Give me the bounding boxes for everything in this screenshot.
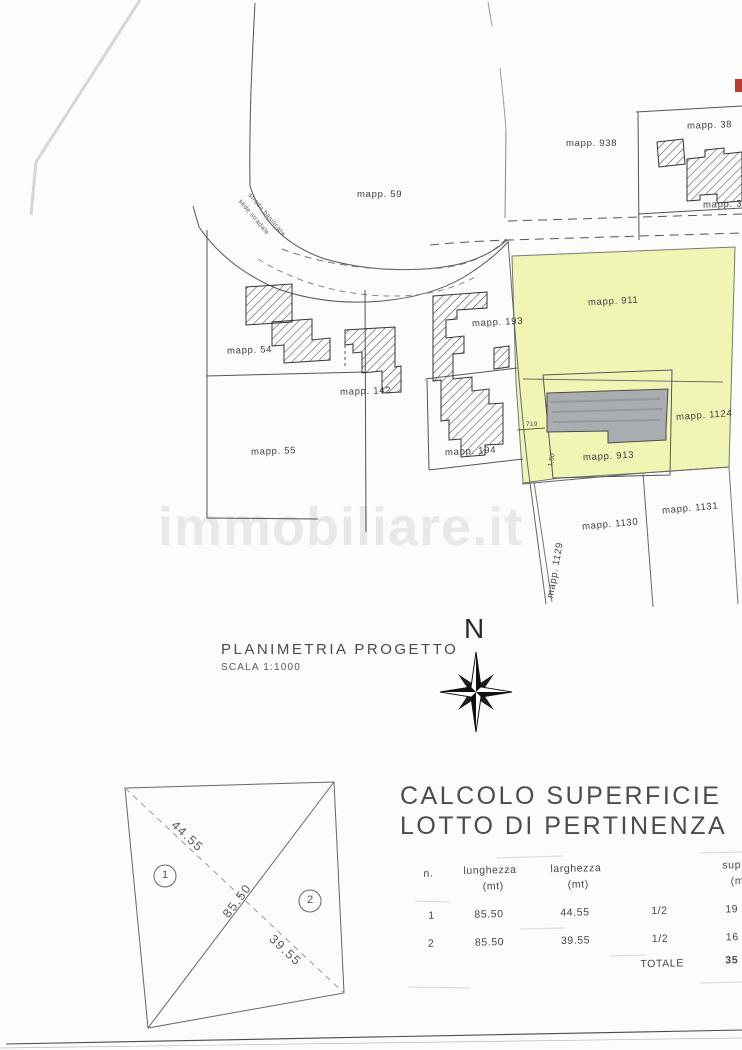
table-row1-n: 1 [428,910,435,922]
table-row1-factor: 1/2 [651,905,668,917]
table-row2-factor: 1/2 [652,933,669,945]
table-row2-sup: 16 [726,931,739,943]
table-row1-sup: 19 [725,903,738,915]
red-scan-mark [735,79,742,92]
table-header-larghezza: larghezza [550,862,601,875]
table-row2-larghezza: 39.55 [561,934,591,947]
table-header-lunghezza-unit: (mt) [483,880,504,892]
table-total-value: 35 [725,954,738,966]
table-row2-n: 2 [428,938,435,950]
table-header-n: n. [423,868,433,880]
scanned-site-plan-page: immobiliare.it mapp. 938 mapp. 38 mapp. … [0,0,742,1050]
surface-calculation-table: n. lunghezza (mt) larghezza (mt) sup (m … [0,0,742,1050]
table-header-larghezza-unit: (mt) [568,878,589,890]
table-header-sup: sup [722,859,741,871]
table-row1-larghezza: 44.55 [560,906,590,919]
table-row1-lunghezza: 85.50 [474,908,504,921]
table-header-lunghezza: lunghezza [463,864,517,877]
table-row2-lunghezza: 85.50 [475,936,505,949]
table-total-label: TOTALE [640,957,684,970]
table-header-sup-unit: (m [731,875,742,887]
